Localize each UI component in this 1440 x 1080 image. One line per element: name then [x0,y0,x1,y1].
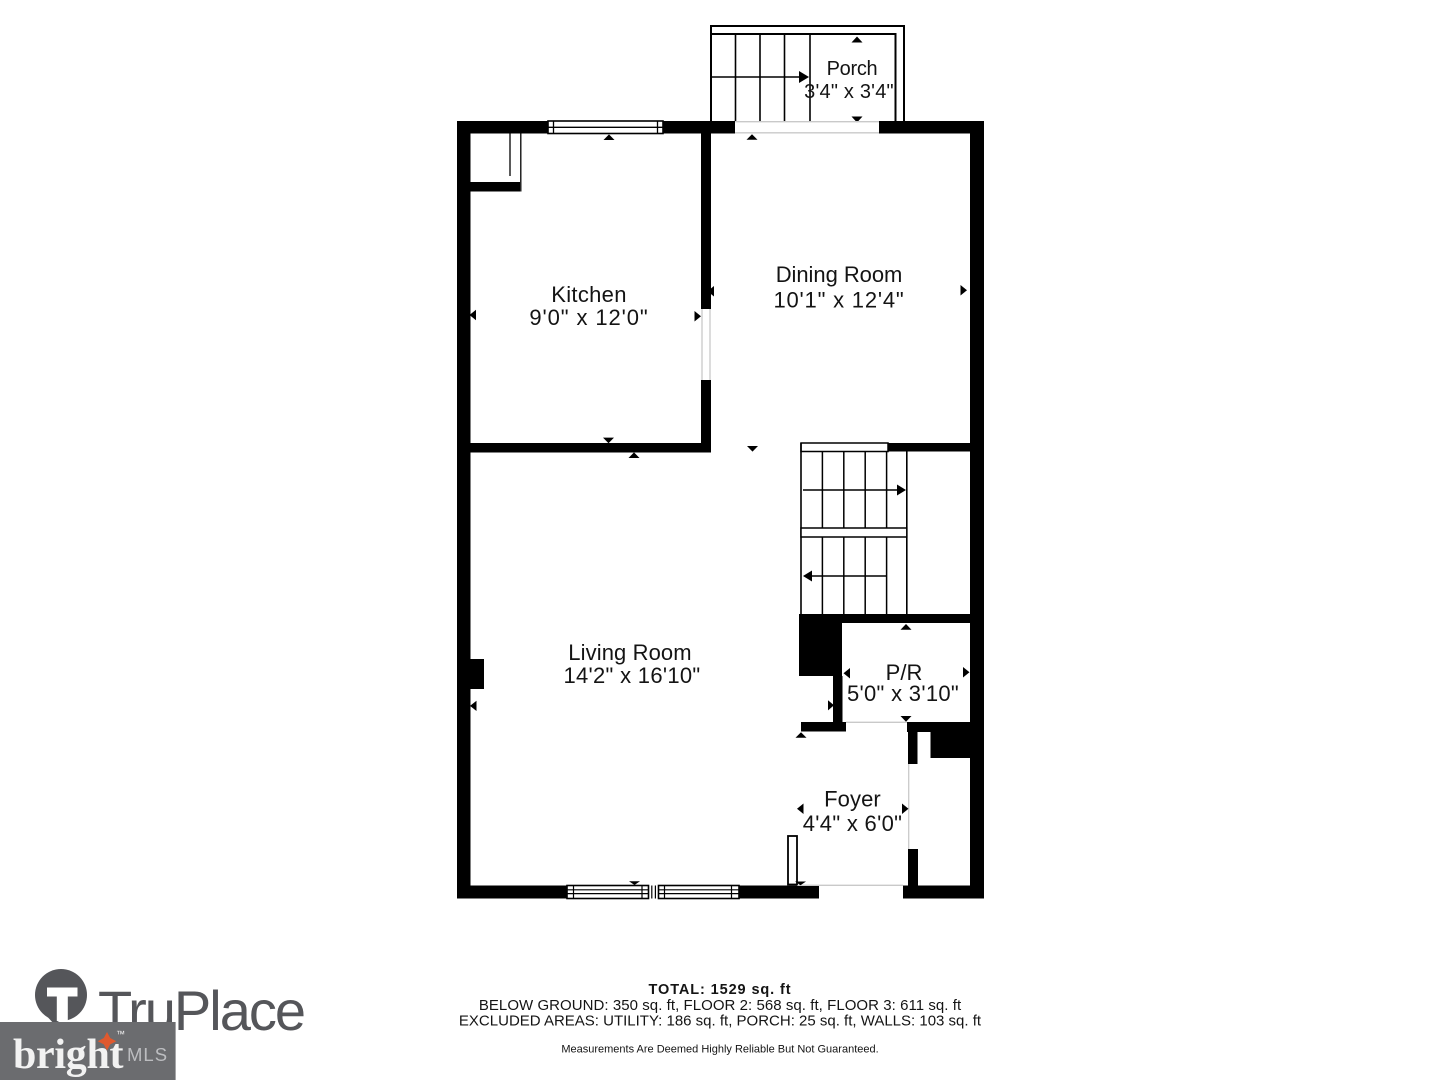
svg-text:EXCLUDED AREAS: UTILITY: 186 s: EXCLUDED AREAS: UTILITY: 186 sq. ft, POR… [459,1013,982,1030]
svg-text:Dining Room: Dining Room [776,262,903,287]
svg-text:MLS: MLS [127,1044,168,1065]
svg-text:5'0" x 3'10": 5'0" x 3'10" [847,681,959,706]
svg-text:3'4" x 3'4": 3'4" x 3'4" [804,81,894,103]
svg-text:Kitchen: Kitchen [551,282,626,307]
svg-text:10'1" x 12'4": 10'1" x 12'4" [773,288,904,313]
svg-text:™: ™ [116,1029,125,1039]
svg-text:BELOW GROUND: 350 sq. ft, FLOO: BELOW GROUND: 350 sq. ft, FLOOR 2: 568 s… [479,997,962,1014]
svg-text:9'0" x 12'0": 9'0" x 12'0" [529,305,648,330]
svg-text:Porch: Porch [827,58,878,80]
svg-text:14'2" x 16'10": 14'2" x 16'10" [563,663,700,688]
svg-text:Living Room: Living Room [568,640,691,665]
svg-text:Foyer: Foyer [824,787,881,812]
svg-text:Measurements Are Deemed Highly: Measurements Are Deemed Highly Reliable … [561,1044,878,1056]
svg-text:TOTAL: 1529 sq. ft: TOTAL: 1529 sq. ft [649,982,792,998]
svg-text:4'4" x 6'0": 4'4" x 6'0" [803,811,903,836]
